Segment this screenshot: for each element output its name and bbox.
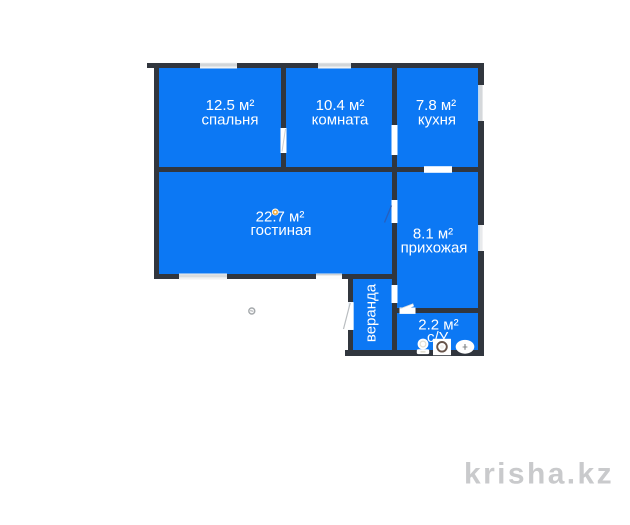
svg-text:спальня: спальня (202, 111, 259, 128)
svg-text:веранда: веранда (363, 283, 380, 342)
svg-text:прихожая: прихожая (401, 239, 468, 256)
svg-text:кухня: кухня (418, 112, 456, 129)
svg-text:комната: комната (312, 112, 369, 129)
svg-text:krisha.kz: krisha.kz (464, 458, 614, 491)
svg-text:гостиная: гостиная (251, 222, 312, 239)
